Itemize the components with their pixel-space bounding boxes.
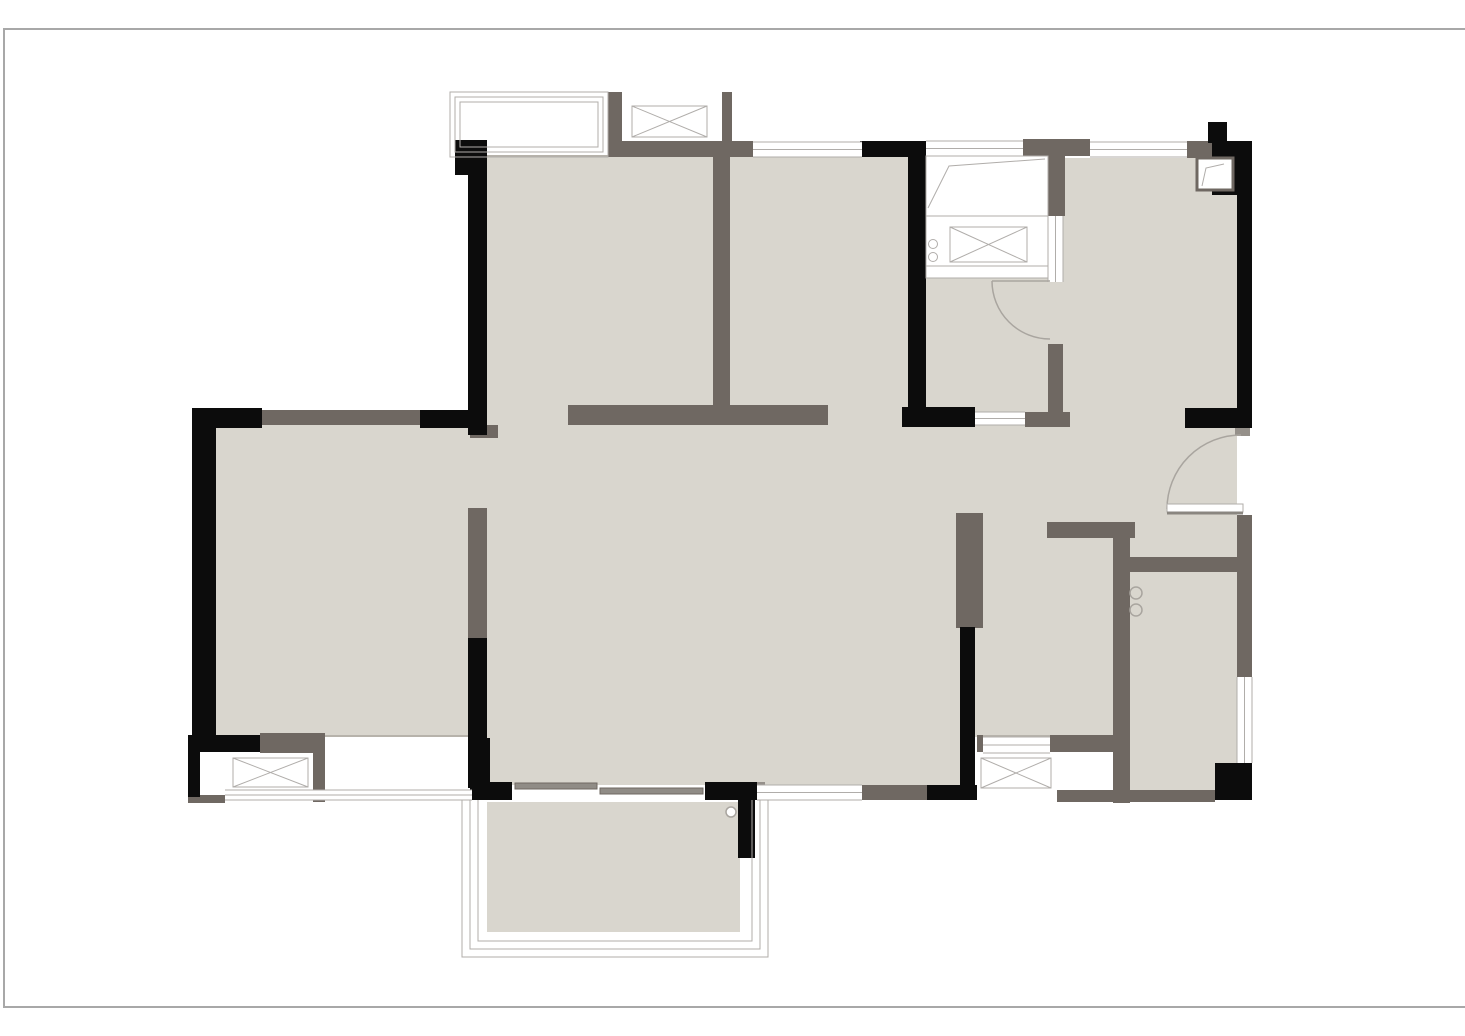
entry-door-swing-arc — [1167, 435, 1241, 509]
balcony-slider-panel-2 — [600, 788, 703, 794]
balcony-railing — [478, 800, 752, 941]
balcony-drain — [726, 807, 736, 817]
balcony-railing — [462, 800, 768, 957]
utility-door-pivot-2 — [1130, 604, 1142, 616]
stove-burner-icon — [929, 240, 938, 249]
floor-plan-canvas — [0, 0, 1465, 1036]
utility-door-pivot-1 — [1130, 587, 1142, 599]
entry-door-leaf — [1167, 504, 1243, 512]
balcony-railing — [470, 800, 760, 949]
stove-burner-icon — [929, 253, 938, 262]
bay-window-outline — [455, 97, 603, 152]
balcony-slider-panel-1 — [515, 783, 597, 789]
bay-window-outline — [460, 102, 598, 147]
plan-details-overlay — [0, 0, 1465, 1036]
kitchen-door-swing-arc — [992, 281, 1050, 339]
